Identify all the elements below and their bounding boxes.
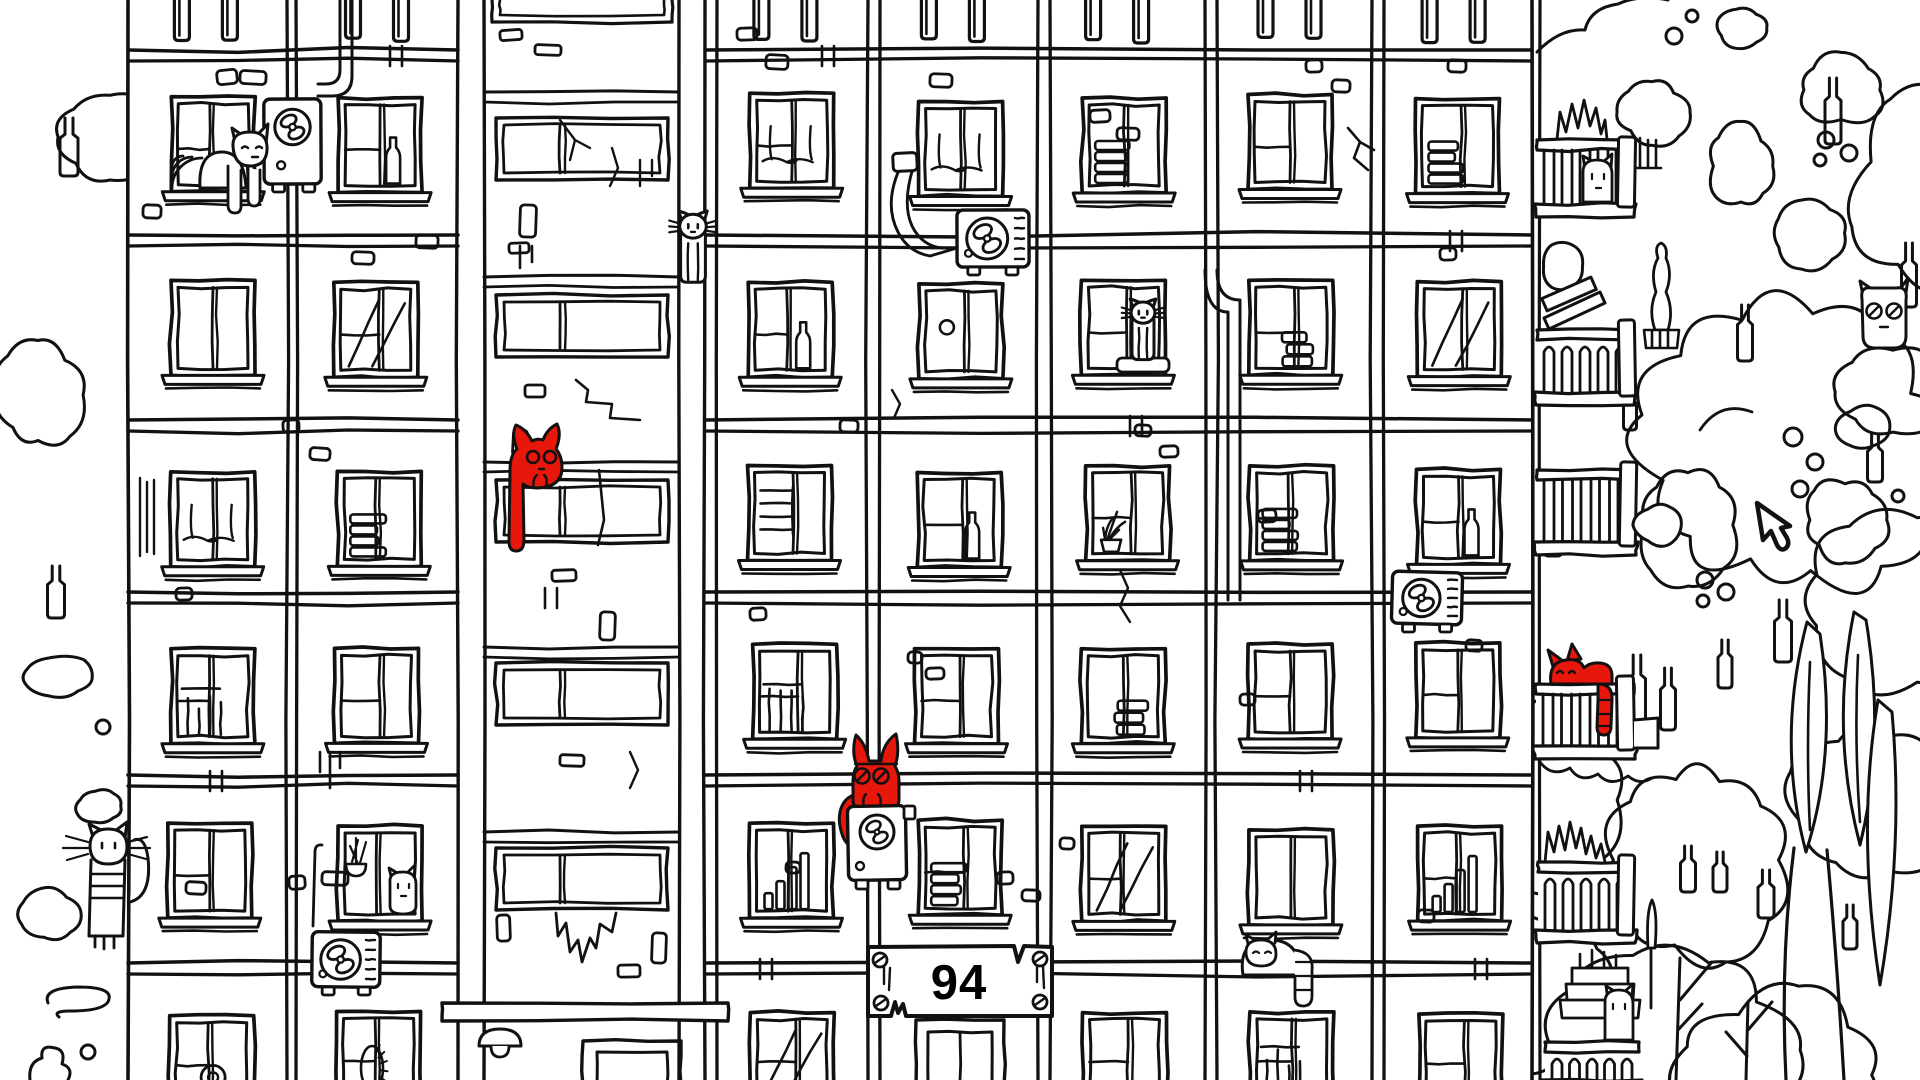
svg-text:94: 94 <box>931 956 988 1010</box>
